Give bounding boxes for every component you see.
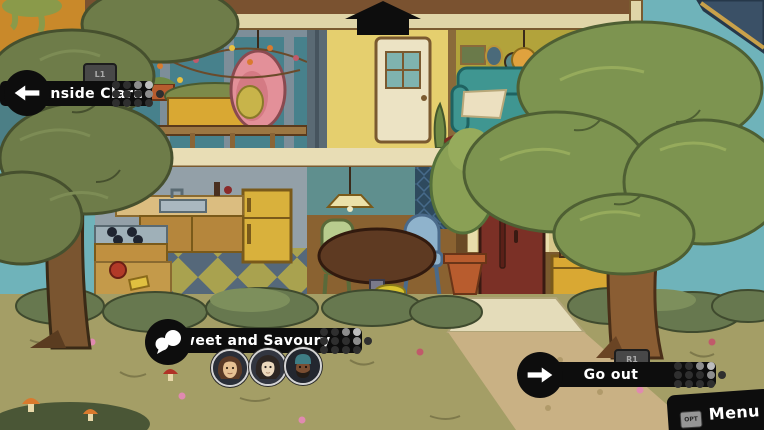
- portrait-woman-brown-hair: [211, 349, 249, 387]
- portrait-woman-dark-hair: [249, 348, 287, 386]
- nav-right-label: Go out: [584, 368, 639, 382]
- arrow-up-icon[interactable]: [340, 0, 426, 38]
- arrow-left-icon: [12, 83, 42, 103]
- game-screen: L1 Inside Clara Sweet and Savoury: [0, 0, 764, 430]
- menu-button[interactable]: OPT Menu: [666, 388, 764, 430]
- conversation-label: Sweet and Savoury: [172, 334, 331, 348]
- arrow-right-icon: [525, 365, 555, 385]
- upstairs-hall: [327, 28, 448, 148]
- options-button-icon: OPT: [680, 410, 703, 428]
- portrait-man-teal-beanie: [284, 347, 322, 385]
- speech-bubbles-icon: [153, 329, 183, 355]
- menu-label: Menu: [708, 401, 760, 424]
